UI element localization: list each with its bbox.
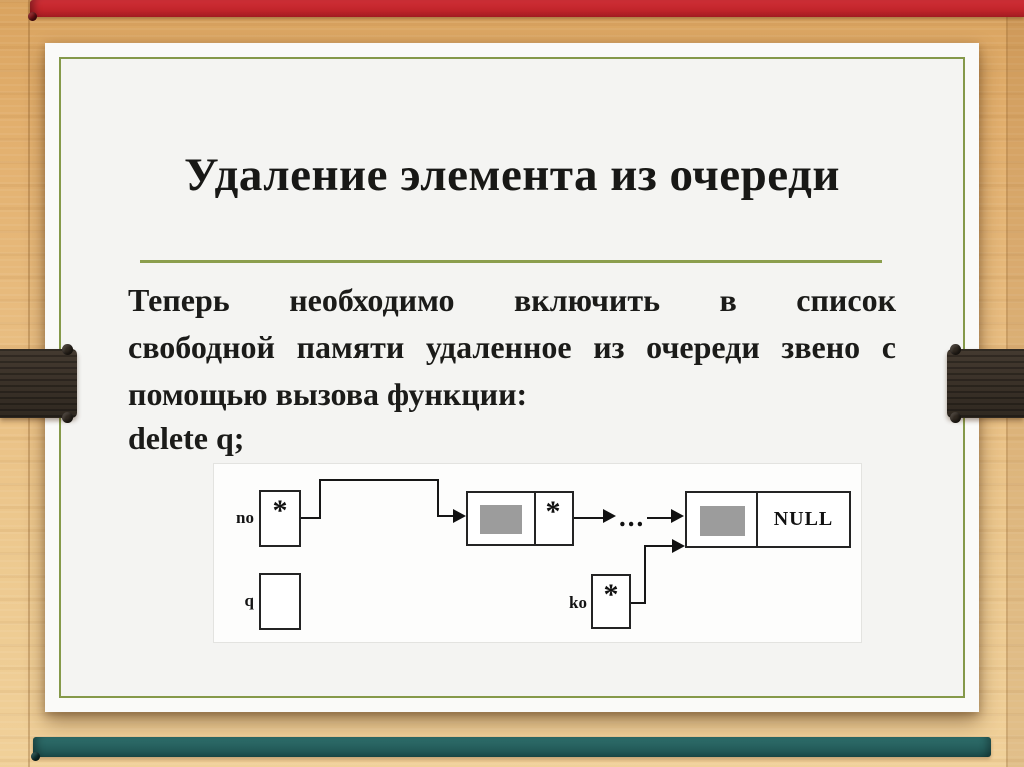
tail-pointer-asterisk: * <box>593 578 629 612</box>
head-arrow-segment <box>437 515 454 517</box>
head-arrow-segment <box>301 517 321 519</box>
body-paragraph: Теперь необходимо включить в список своб… <box>128 277 896 418</box>
chain-arrowhead-icon <box>603 509 616 523</box>
chain-arrow-segment <box>647 517 672 519</box>
free-pointer-label: q <box>216 591 254 611</box>
diagram-panel: no * q * ... <box>213 463 862 643</box>
bottom-teal-ribbon <box>33 737 991 757</box>
head-pointer-asterisk: * <box>261 494 299 528</box>
head-pointer-box: * <box>259 490 301 547</box>
tail-pointer-box: * <box>591 574 631 629</box>
chain-arrow-segment <box>574 517 604 519</box>
first-node-asterisk: * <box>534 495 572 529</box>
ribbon-pin-icon <box>62 344 73 355</box>
presentation-slide: Удаление элемента из очереди Теперь необ… <box>0 0 1024 767</box>
last-node: NULL <box>685 491 851 548</box>
code-statement: delete q; <box>128 415 244 462</box>
head-arrow-segment <box>319 479 321 519</box>
title-separator-line <box>140 260 882 263</box>
slide-title: Удаление элемента из очереди <box>45 147 979 203</box>
first-node-data-block <box>480 505 522 534</box>
body-line-3: помощью вызова функции: <box>128 371 896 418</box>
tail-arrow-segment <box>644 545 673 547</box>
null-label: NULL <box>758 493 849 546</box>
top-red-ribbon <box>30 0 1024 17</box>
ribbon-pin-icon <box>31 752 40 761</box>
body-line-2: свободной памяти удаленное из очереди зв… <box>128 324 896 371</box>
tail-pointer-label: ko <box>549 593 587 613</box>
head-arrowhead-icon <box>453 509 466 523</box>
ribbon-pin-icon <box>950 344 961 355</box>
slide-sheet: Удаление элемента из очереди Теперь необ… <box>45 43 979 712</box>
last-node-data-block <box>700 506 745 536</box>
head-arrow-segment <box>437 479 439 517</box>
left-dark-ribbon <box>0 349 77 418</box>
tail-arrow-segment <box>644 545 646 604</box>
chain-ellipsis: ... <box>619 502 645 533</box>
ribbon-pin-icon <box>28 12 37 21</box>
body-line-1: Теперь необходимо включить в список <box>128 277 896 324</box>
free-pointer-box <box>259 573 301 630</box>
head-pointer-label: no <box>216 508 254 528</box>
ribbon-pin-icon <box>950 412 961 423</box>
first-node: * <box>466 491 574 546</box>
ribbon-pin-icon <box>62 412 73 423</box>
head-arrow-segment <box>319 479 439 481</box>
right-dark-ribbon <box>947 349 1024 418</box>
tail-arrowhead-icon <box>672 539 685 553</box>
chain-arrowhead-icon <box>671 509 684 523</box>
